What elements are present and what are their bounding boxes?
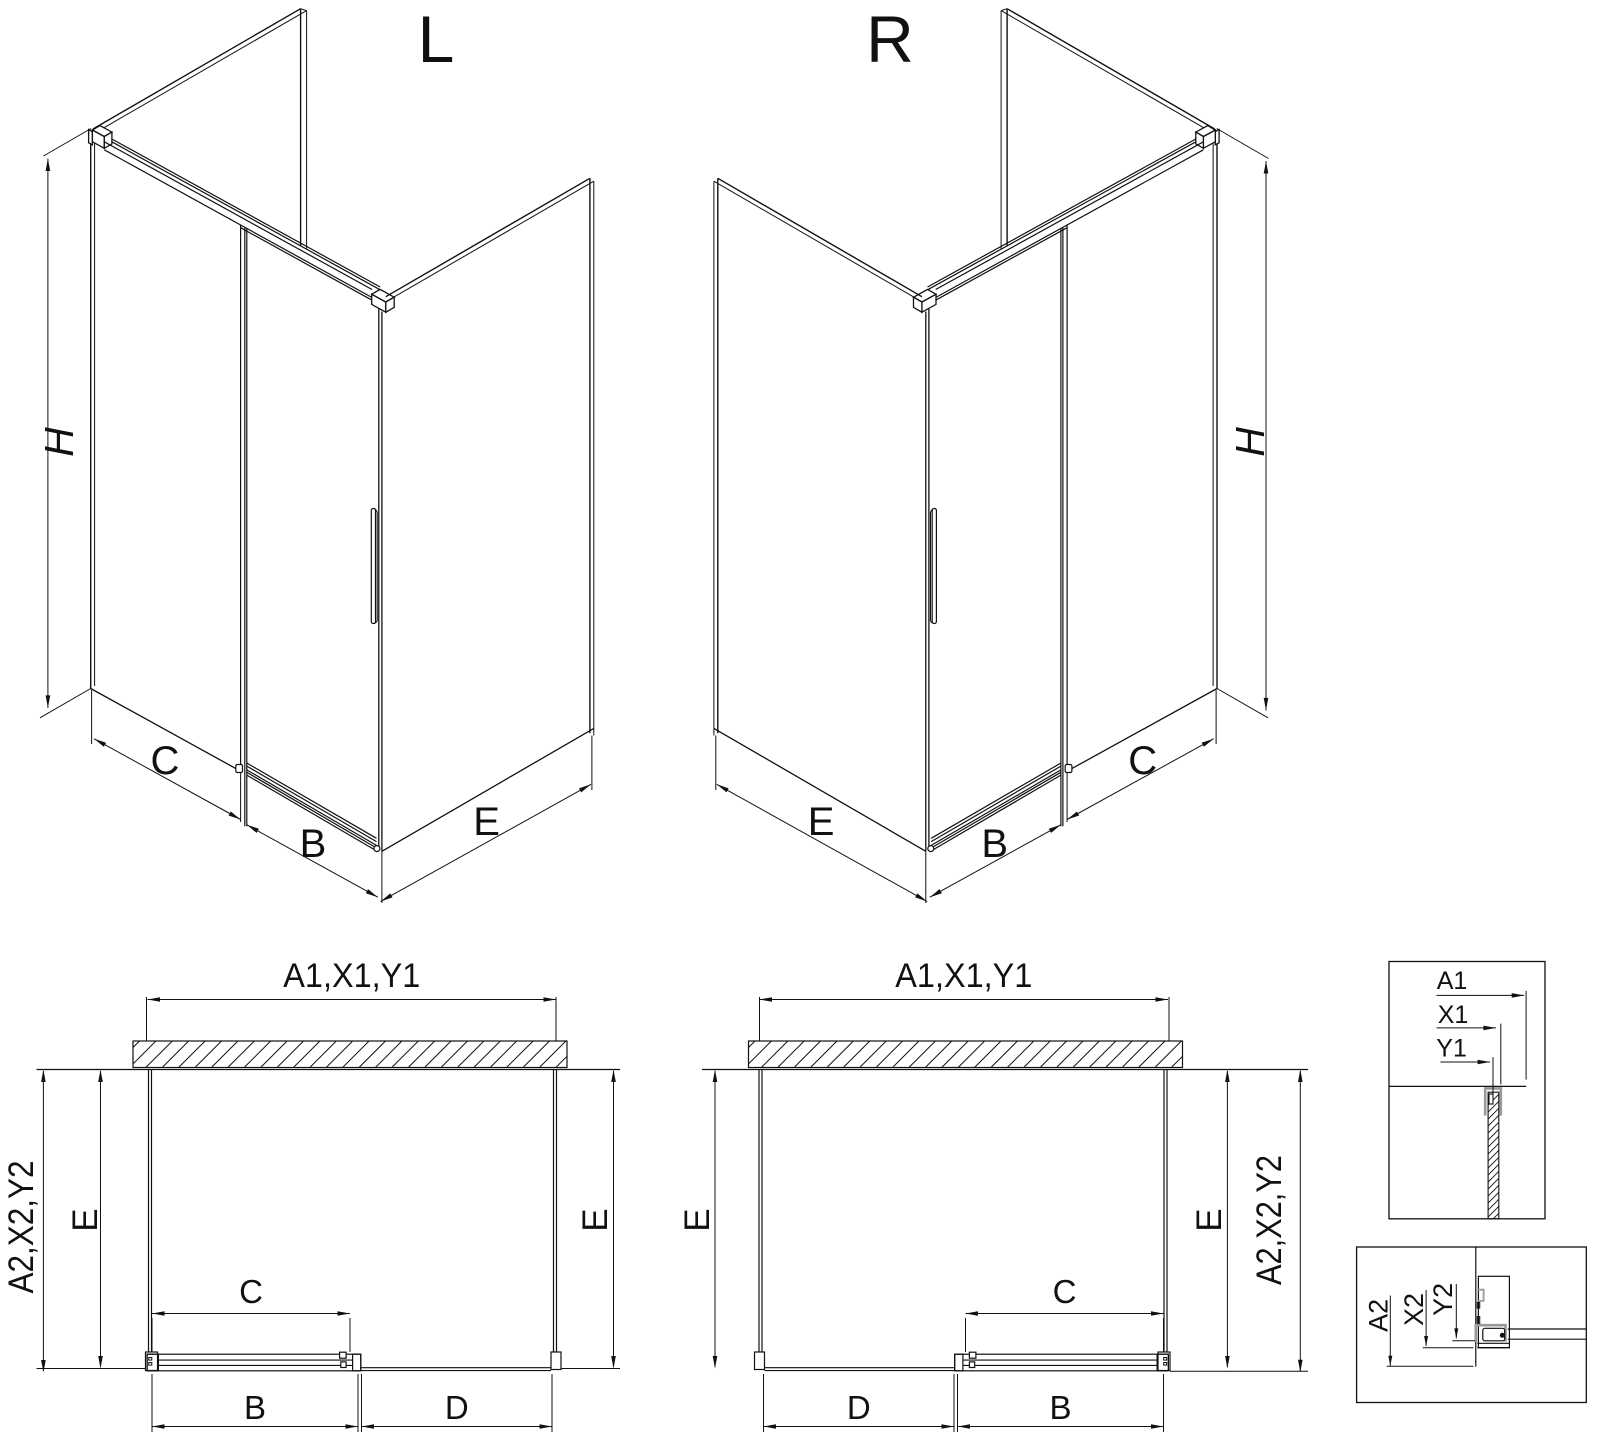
svg-text:A1: A1: [1437, 967, 1468, 995]
svg-text:L: L: [418, 2, 455, 76]
svg-text:H: H: [36, 427, 82, 457]
svg-text:E: E: [1190, 1208, 1229, 1231]
svg-text:E: E: [576, 1208, 615, 1231]
svg-text:E: E: [678, 1208, 717, 1231]
svg-text:C: C: [1128, 739, 1157, 783]
svg-text:E: E: [66, 1208, 105, 1231]
svg-text:E: E: [473, 800, 500, 844]
svg-text:A1,X1,Y1: A1,X1,Y1: [283, 957, 420, 995]
svg-text:B: B: [1049, 1389, 1071, 1426]
svg-text:A1,X1,Y1: A1,X1,Y1: [895, 957, 1032, 995]
svg-text:B: B: [244, 1389, 266, 1426]
svg-text:X2: X2: [1399, 1293, 1429, 1326]
svg-text:Y1: Y1: [1436, 1034, 1467, 1062]
svg-text:D: D: [445, 1389, 469, 1426]
svg-text:E: E: [808, 800, 835, 844]
svg-text:R: R: [866, 2, 914, 76]
svg-text:Y2: Y2: [1428, 1283, 1458, 1316]
svg-text:A2,X2,Y2: A2,X2,Y2: [1250, 1155, 1289, 1285]
svg-text:C: C: [1053, 1273, 1077, 1310]
svg-text:H: H: [1227, 427, 1273, 457]
svg-text:B: B: [300, 822, 327, 866]
svg-text:B: B: [981, 822, 1008, 866]
svg-text:A2: A2: [1364, 1299, 1394, 1332]
svg-text:X1: X1: [1438, 1001, 1469, 1029]
svg-text:C: C: [151, 739, 180, 783]
svg-text:A2,X2,Y2: A2,X2,Y2: [2, 1161, 41, 1294]
svg-text:C: C: [239, 1273, 263, 1310]
svg-text:D: D: [847, 1389, 871, 1426]
